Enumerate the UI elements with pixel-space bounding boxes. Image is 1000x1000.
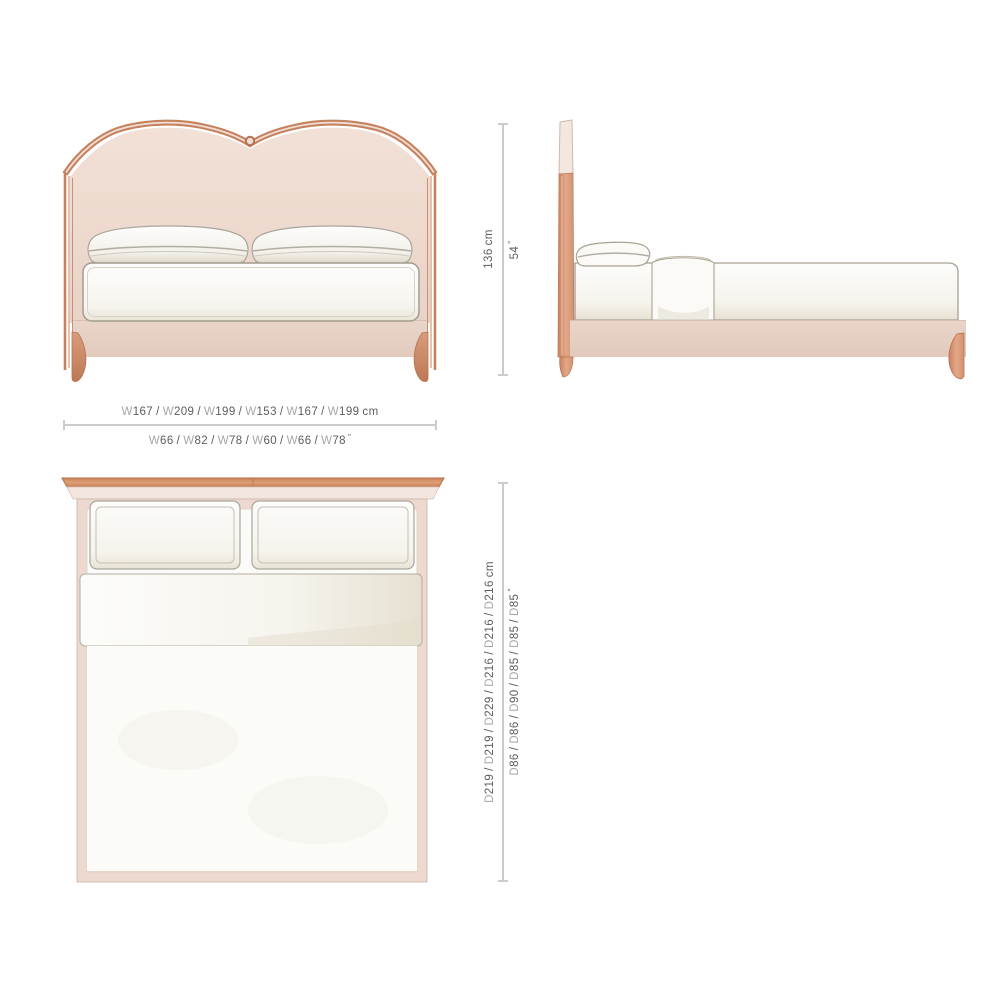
- dimension-sheet: W167/W209/W199/W153/W167/W199cm W66/W82/…: [0, 0, 1000, 1000]
- front-pillow-left: [88, 226, 248, 264]
- width-values-inch: W66/W82/W78/W60/W66/W78″: [63, 433, 437, 447]
- top-duvet: [87, 646, 417, 872]
- top-view-illustration: [58, 470, 450, 892]
- top-pillow-left: [90, 501, 240, 569]
- depth-dimension-line: [502, 482, 504, 882]
- side-pillow: [576, 242, 649, 266]
- front-mattress: [83, 263, 419, 321]
- depth-values-inch: D86/D86/D90/D85/D85/D85″: [507, 588, 521, 775]
- front-crest-knot: [246, 137, 254, 145]
- height-value-inch: 54″: [507, 241, 521, 260]
- side-headboard-top: [559, 120, 573, 175]
- top-pillow-right: [252, 501, 414, 569]
- width-values-cm: W167/W209/W199/W153/W167/W199cm: [63, 406, 437, 418]
- side-folded-sheet: [652, 256, 714, 320]
- side-foot-headboard: [560, 357, 573, 377]
- side-mattress: [575, 263, 958, 320]
- depth-values-cm: D219/D219/D229/D216/D216/D216cm: [484, 561, 496, 803]
- front-bed-base: [72, 320, 428, 357]
- front-view-illustration: [58, 110, 450, 388]
- side-bed-base: [570, 320, 966, 357]
- height-dimension-line: [502, 123, 504, 376]
- top-headboard-moulding: [67, 487, 439, 499]
- side-view-illustration: [552, 110, 972, 388]
- width-dimension-line: [63, 424, 437, 426]
- top-folded-sheet: [80, 574, 422, 646]
- height-value-cm: 136cm: [483, 229, 495, 269]
- front-pillow-right: [252, 226, 412, 264]
